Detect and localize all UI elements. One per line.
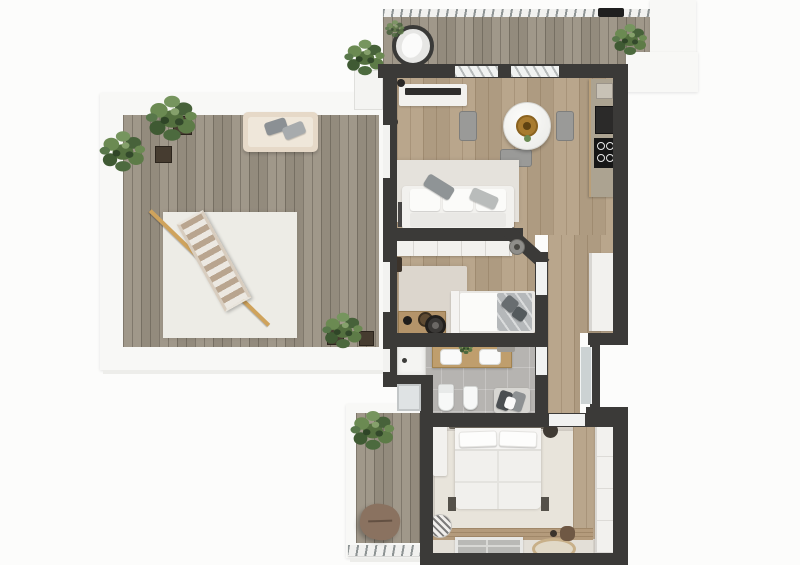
- window-terrace-living: [383, 125, 390, 178]
- window-top-left: [455, 66, 498, 77]
- terrace-plant-left-icon: [96, 126, 150, 178]
- main-bedroom-wardrobe: [595, 425, 613, 553]
- tv-flatscreen: [405, 88, 461, 95]
- plant-pot: [155, 146, 172, 163]
- door-bathroom: [536, 347, 547, 375]
- tall-cabinet: [589, 253, 614, 331]
- tray-bowl: [523, 122, 531, 130]
- window-terrace-bedroom: [383, 262, 390, 312]
- bed-duvet: [455, 449, 541, 509]
- bed-pillow-right: [499, 430, 538, 447]
- railing-flower-box: [598, 8, 624, 17]
- wall-balcony-divider: [420, 375, 433, 555]
- lower-balcony-plant-icon: [346, 406, 400, 456]
- shower-drain: [402, 358, 407, 363]
- bedroom-small-item: [550, 530, 557, 537]
- terrace-bench: [243, 112, 318, 152]
- table-plant-sprig-icon: [524, 135, 531, 142]
- shower: [397, 345, 426, 376]
- duvet-fold: [497, 451, 499, 509]
- wall-bathroom-top: [383, 333, 548, 347]
- bedroom-basket: [560, 526, 575, 541]
- cooktop: [594, 138, 615, 168]
- single-bed: [451, 291, 535, 333]
- top-balcony-plant-icon: [608, 20, 652, 60]
- floor-plan-render: [0, 0, 800, 565]
- kitchen-sink: [596, 83, 613, 99]
- dining-table-round: [503, 102, 551, 150]
- pouf-seam: [368, 520, 392, 523]
- kitchen-counter: [589, 79, 615, 197]
- wall-living-bottom: [383, 228, 523, 241]
- door-main-bedroom: [549, 414, 585, 426]
- bidet: [463, 386, 478, 410]
- dining-chair-right: [556, 111, 574, 141]
- gold-tray: [516, 115, 538, 137]
- window-top-right: [511, 66, 559, 77]
- wall-right-upper: [613, 64, 628, 333]
- bedroom-shelf: [433, 426, 447, 476]
- gray-plant-pot: [509, 239, 525, 255]
- hall-floor-lower: [548, 333, 580, 413]
- single-bed-headboard: [451, 291, 460, 333]
- wall-bottom: [420, 553, 628, 565]
- door-small-bedroom: [536, 262, 547, 295]
- balcony-parapet-corner-vertical: [650, 0, 696, 56]
- small-bedroom-wardrobe: [390, 240, 512, 256]
- speaker: [397, 79, 405, 87]
- lower-balcony-railing: [348, 545, 422, 556]
- wall-right-jut: [588, 333, 628, 345]
- burner: [597, 154, 605, 162]
- bed-frame-post: [541, 497, 549, 511]
- lower-balcony-shadow: [350, 558, 422, 562]
- window-bathroom: [383, 349, 390, 372]
- bed-pillow-left: [459, 430, 498, 447]
- door-lower-balcony: [397, 384, 421, 411]
- window-hall-glass: [580, 347, 592, 404]
- sofa-seat-base: [410, 213, 506, 227]
- oven: [595, 106, 614, 134]
- low-table-line: [458, 545, 520, 547]
- bedroom-wood-strip: [573, 427, 595, 539]
- toilet: [438, 384, 454, 411]
- terrace-plant-bottomright-icon: [318, 308, 368, 354]
- towel-bench: [494, 388, 530, 413]
- stool-center: [432, 322, 439, 329]
- double-bed: [455, 428, 541, 507]
- toilet-tank: [439, 385, 453, 393]
- bed-frame-post: [448, 497, 456, 511]
- desk-kettle: [403, 316, 412, 325]
- wall-right-lower: [613, 415, 628, 555]
- wall-living-top: [378, 64, 628, 78]
- sofa: [402, 186, 514, 230]
- terrace-shadow: [103, 370, 387, 374]
- wall-main-bedroom-top: [428, 413, 613, 427]
- duvet-fold: [455, 481, 541, 483]
- gray-pot-center: [514, 244, 520, 250]
- dining-chair-left: [459, 111, 477, 141]
- burner: [597, 142, 605, 150]
